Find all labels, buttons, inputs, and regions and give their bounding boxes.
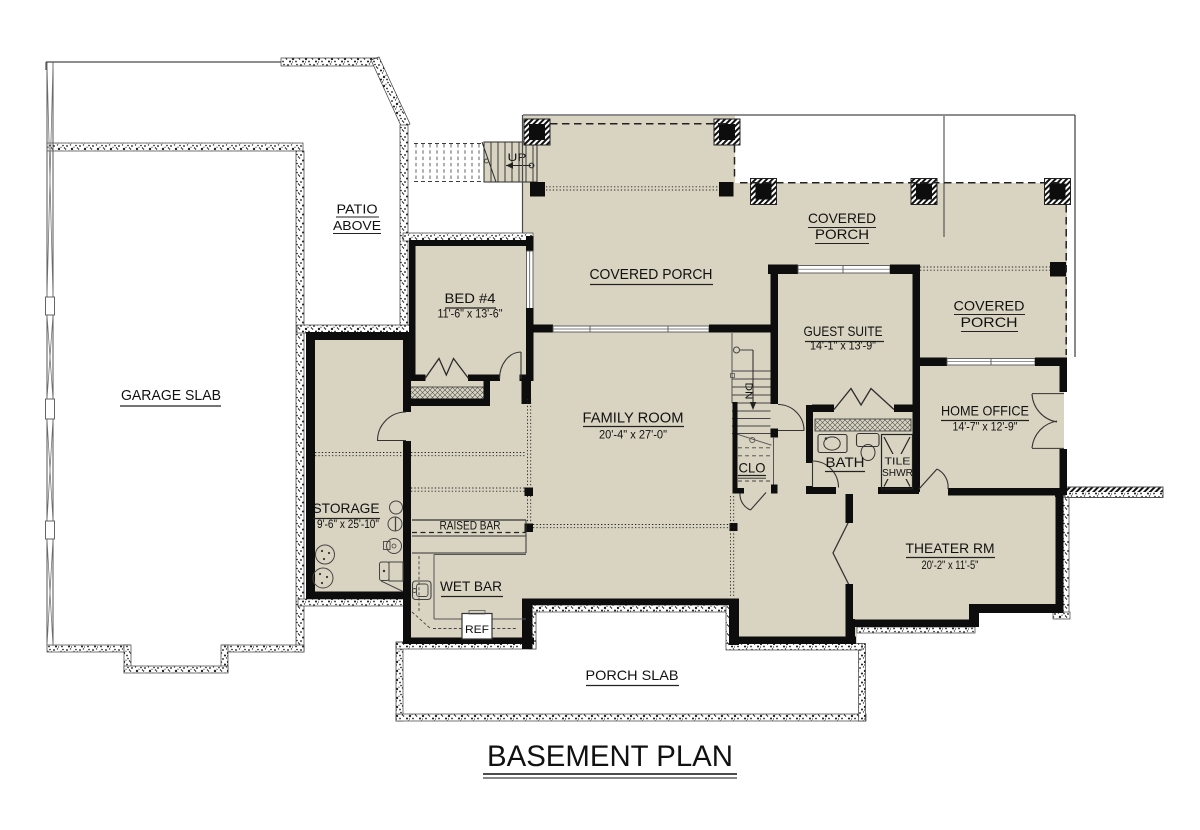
svg-text:GARAGE SLAB: GARAGE SLAB [121,387,221,404]
svg-text:14'-7" x 12'-9": 14'-7" x 12'-9" [953,422,1018,434]
svg-text:REF: REF [465,624,489,636]
svg-text:20'-2" x 11'-5": 20'-2" x 11'-5" [922,560,979,572]
svg-text:STORAGE: STORAGE [313,500,380,516]
svg-text:HOME OFFICE: HOME OFFICE [941,403,1029,419]
svg-text:PORCH SLAB: PORCH SLAB [586,667,679,683]
svg-text:BED #4: BED #4 [445,290,496,306]
svg-text:PORCH: PORCH [815,226,869,242]
svg-text:11'-6" x 13'-6": 11'-6" x 13'-6" [438,309,503,321]
svg-text:ABOVE: ABOVE [333,218,381,233]
svg-text:COVERED: COVERED [808,210,876,226]
svg-text:BASEMENT PLAN: BASEMENT PLAN [487,740,733,773]
svg-text:9'-6" x 25'-10": 9'-6" x 25'-10" [317,519,379,531]
svg-text:COVERED PORCH: COVERED PORCH [590,266,713,283]
svg-text:THEATER RM: THEATER RM [906,540,995,556]
svg-text:BATH: BATH [826,454,865,470]
svg-text:DN: DN [743,383,754,400]
svg-text:SHWR: SHWR [882,468,913,479]
svg-text:20'-4" x 27'-0": 20'-4" x 27'-0" [599,430,667,442]
svg-text:FAMILY ROOM: FAMILY ROOM [583,410,684,427]
svg-text:14'-1" x 13'-9": 14'-1" x 13'-9" [810,341,876,353]
svg-text:RAISED BAR: RAISED BAR [440,519,501,533]
svg-text:PORCH: PORCH [961,314,1018,330]
svg-text:WET BAR: WET BAR [440,578,502,594]
svg-text:GUEST SUITE: GUEST SUITE [804,323,883,339]
svg-text:COVERED: COVERED [954,298,1025,314]
svg-text:TILE: TILE [885,457,911,468]
svg-text:UP: UP [508,152,527,164]
svg-text:PATIO: PATIO [337,202,378,217]
svg-text:CLO: CLO [739,460,766,476]
